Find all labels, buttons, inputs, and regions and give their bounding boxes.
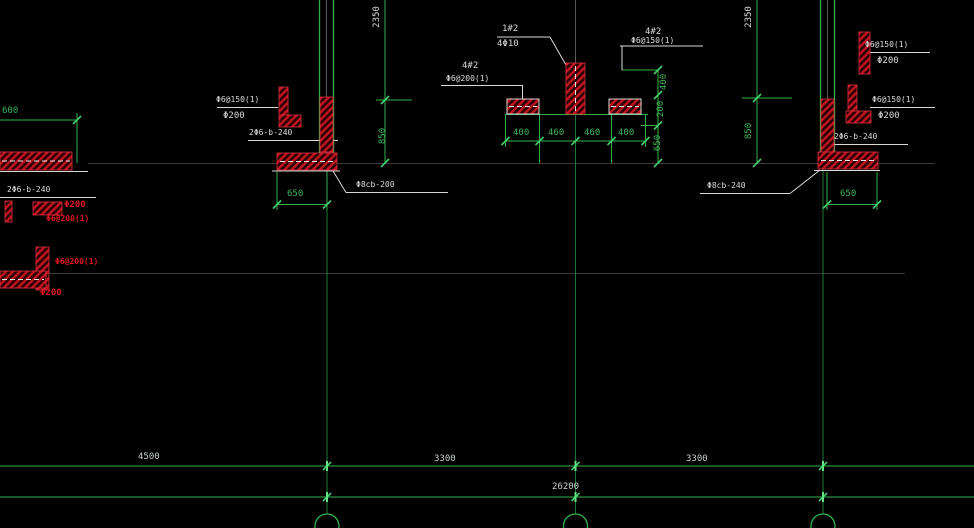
label-leader-left: Φ8cb-200 — [356, 180, 395, 190]
label-right-column-line1: Φ6@150(1) — [872, 95, 915, 105]
label-center-right-line2: Φ6@150(1) — [631, 36, 674, 46]
dim-text-400-a: 400 — [513, 128, 529, 138]
left-rebar-L-foot — [279, 115, 301, 127]
dim-text-460-b: 460 — [584, 128, 600, 138]
red-hatched-sections — [0, 32, 878, 290]
label-left-column-line2: Φ200 — [223, 111, 245, 121]
dim-text-460-a: 460 — [548, 128, 564, 138]
label-center-top-line1: 1#2 — [502, 24, 518, 34]
dimension-ticks — [73, 66, 881, 501]
left-column-hatch — [320, 97, 333, 152]
label-left-footing: 2Φ6-b-240 — [249, 128, 292, 138]
dim-text-650-right: 650 — [840, 189, 856, 199]
edge-detail1-strip — [5, 201, 12, 222]
label-center-top-line2: 4Φ10 — [497, 39, 519, 49]
dim-text-600: 600 — [2, 106, 18, 116]
dim-text-2350-left: 2350 — [372, 0, 382, 39]
dim-text-3300-right: 3300 — [686, 454, 708, 464]
dim-text-650-vert: 650 — [653, 121, 663, 165]
label-edge-detail2-line2: Φ200 — [40, 288, 62, 298]
label-edge-detail1-line2: Φ6@200(1) — [46, 214, 89, 224]
dim-text-400-b: 400 — [618, 128, 634, 138]
faint-construction-lines — [0, 164, 935, 274]
dim-text-850-left: 850 — [378, 114, 388, 158]
dim-text-4500: 4500 — [138, 452, 160, 462]
grid-axis-lines — [327, 115, 823, 514]
label-right-top-line2: Φ200 — [877, 56, 899, 66]
cad-drawing-canvas: 2350 2350 850 850 400 200 650 600 650 65… — [0, 0, 974, 528]
label-edge-detail2-line1: Φ6@200(1) — [55, 257, 98, 267]
label-center-left-line1: 4#2 — [462, 61, 478, 71]
dim-text-2350-right: 2350 — [744, 0, 754, 39]
label-left-column-line1: Φ6@150(1) — [216, 95, 259, 105]
dim-text-650-left: 650 — [287, 189, 303, 199]
dim-text-3300-left: 3300 — [434, 454, 456, 464]
dim-text-26200: 26200 — [552, 482, 579, 492]
label-edge-footing: 2Φ6-b-240 — [7, 185, 50, 195]
dim-text-850-right: 850 — [744, 109, 754, 153]
label-center-left-line2: Φ6@200(1) — [446, 74, 489, 84]
label-leader-right: Φ8cb-240 — [707, 181, 746, 191]
label-edge-detail1-line1: Φ200 — [64, 200, 86, 210]
left-rebar-L-vertical — [279, 87, 288, 117]
right-top-rebar-strip — [859, 32, 870, 74]
label-right-top-line1: Φ6@150(1) — [865, 40, 908, 50]
label-right-column-line2: Φ200 — [878, 111, 900, 121]
grid-bubbles — [315, 514, 835, 528]
right-rebar-L-foot — [846, 111, 871, 123]
label-right-footing: 2Φ6-b-240 — [834, 132, 877, 142]
right-rebar-L-vertical — [848, 85, 857, 112]
